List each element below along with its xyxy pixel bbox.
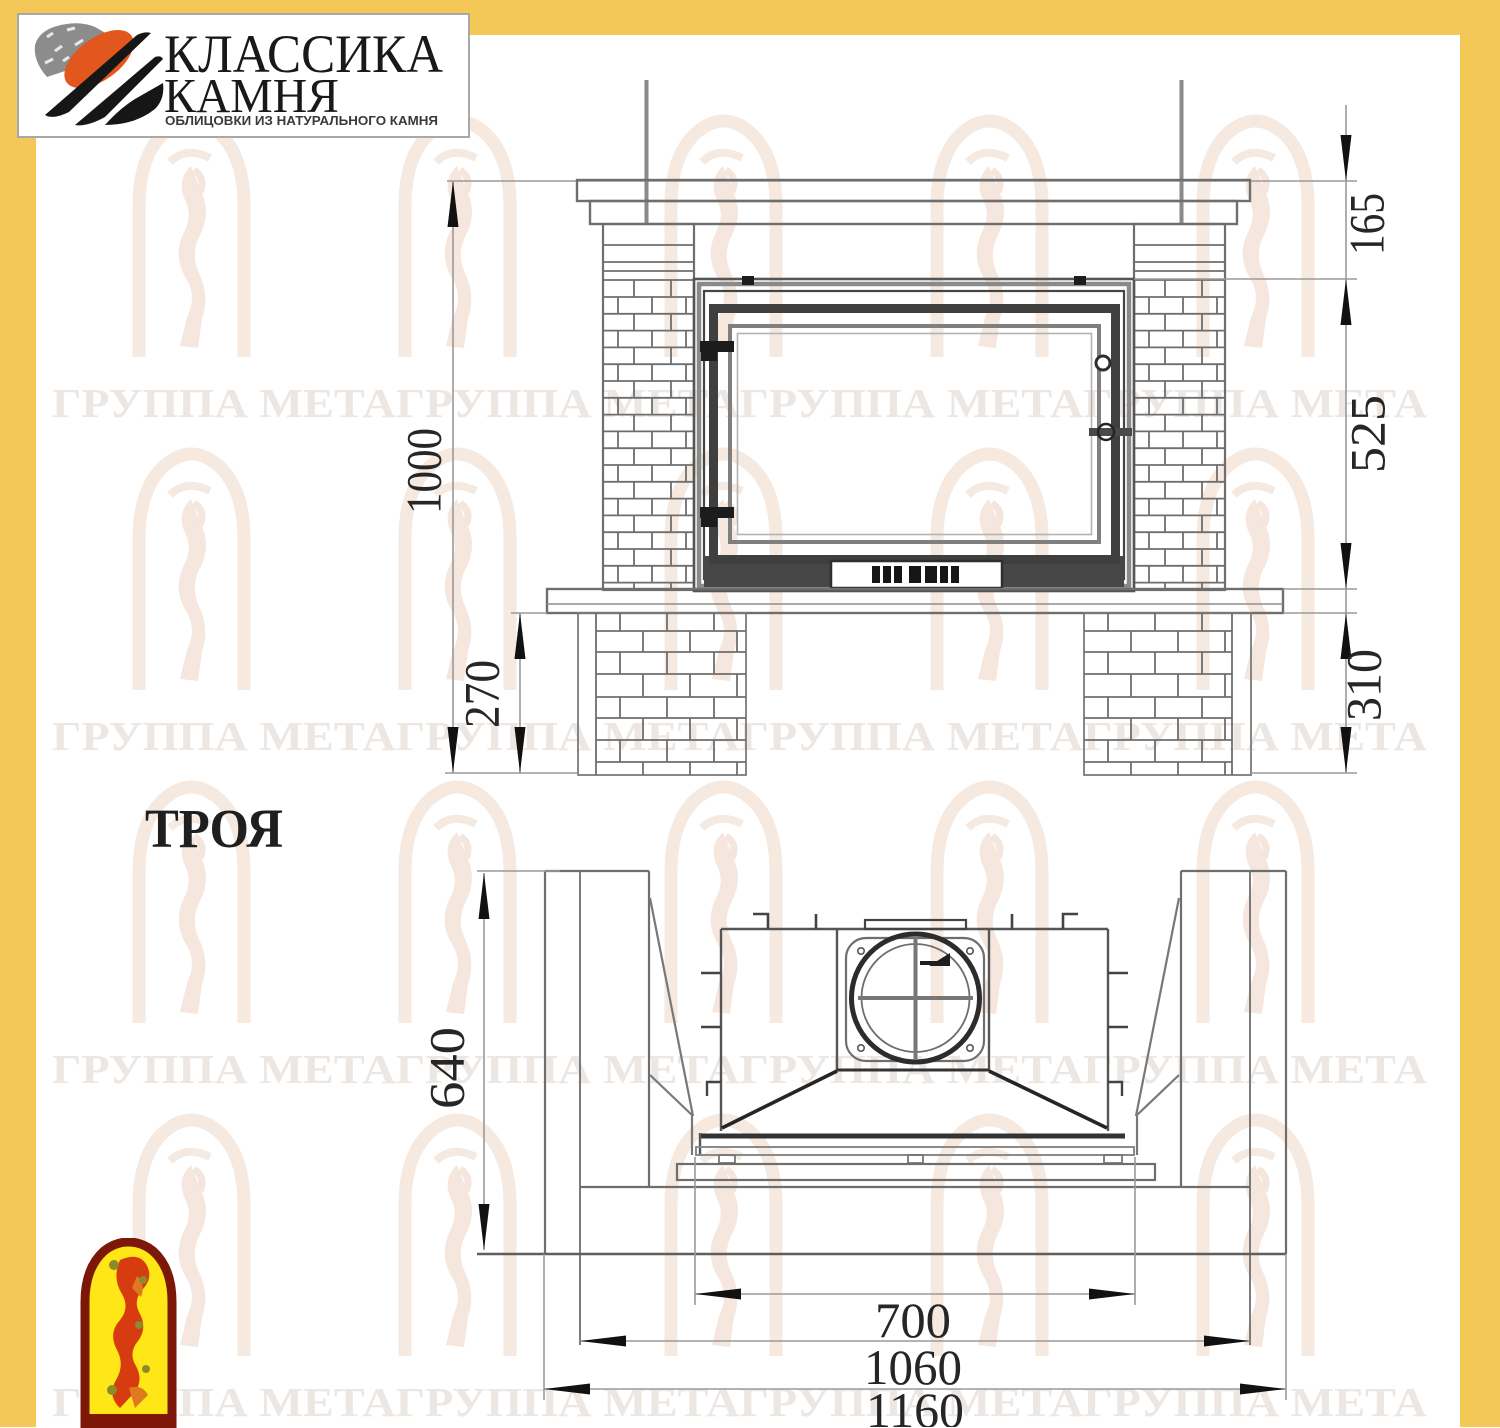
- svg-text:525: 525: [1339, 395, 1395, 473]
- svg-text:165: 165: [1338, 193, 1394, 255]
- svg-text:ОБЛИЦОВКИ ИЗ НАТУРАЛЬНОГО КАМН: ОБЛИЦОВКИ ИЗ НАТУРАЛЬНОГО КАМНЯ: [165, 113, 438, 128]
- svg-text:1160: 1160: [866, 1382, 964, 1427]
- svg-text:640: 640: [418, 1027, 474, 1109]
- svg-text:270: 270: [453, 660, 509, 728]
- svg-text:1000: 1000: [395, 428, 451, 514]
- svg-text:310: 310: [1335, 649, 1391, 721]
- svg-text:ТРОЯ: ТРОЯ: [145, 798, 283, 859]
